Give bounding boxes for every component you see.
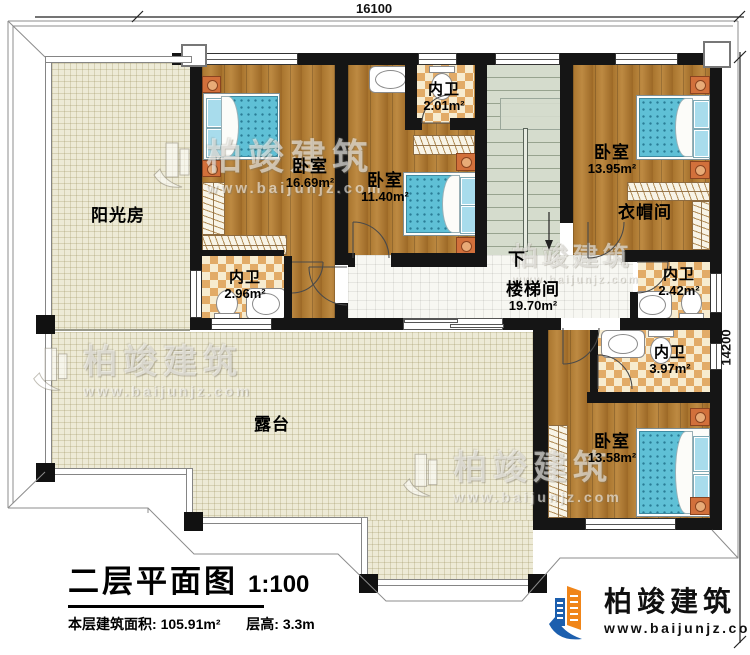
toilet-tank bbox=[429, 66, 455, 73]
room-area: 13.95m² bbox=[588, 162, 636, 177]
room-name: 衣帽间 bbox=[618, 203, 672, 222]
wall bbox=[405, 65, 417, 123]
room-label-bedroom3: 卧室 13.95m² bbox=[588, 143, 636, 177]
blanket bbox=[442, 175, 460, 233]
title-underline bbox=[68, 605, 264, 608]
terrace-post bbox=[359, 574, 378, 593]
brand-logo: 柏竣建筑 www.baijunjz.com bbox=[546, 582, 750, 642]
room-label-bath1: 内卫 2.96m² bbox=[224, 270, 265, 301]
pillow bbox=[694, 101, 709, 128]
room-name: 楼梯间 bbox=[506, 280, 560, 299]
nightstand bbox=[202, 160, 221, 177]
nightstand bbox=[690, 161, 710, 179]
terrace-post bbox=[184, 512, 203, 531]
room-area: 3.97m² bbox=[649, 362, 690, 377]
terrace-floor bbox=[366, 520, 533, 585]
dimension-width: 16100 bbox=[356, 1, 392, 16]
glass-wall bbox=[193, 517, 368, 524]
blanket bbox=[675, 98, 693, 157]
sliding-door-panel bbox=[404, 319, 458, 323]
glass-wall bbox=[368, 579, 536, 586]
brand-url: www.baijunjz.com bbox=[604, 620, 750, 636]
nightstand bbox=[456, 153, 476, 171]
room-area: 11.40m² bbox=[361, 190, 409, 205]
room-name: 阳光房 bbox=[91, 206, 145, 225]
room-label-bath2: 内卫 2.01m² bbox=[423, 82, 464, 113]
floor-area-value: 105.91m² bbox=[161, 616, 221, 632]
sink bbox=[375, 70, 406, 89]
corner-window-frame bbox=[703, 41, 731, 68]
window bbox=[585, 518, 676, 530]
window bbox=[190, 270, 202, 318]
window bbox=[202, 53, 298, 65]
bed bbox=[403, 172, 477, 236]
nightstand bbox=[690, 497, 710, 515]
plan-scale: 1:100 bbox=[248, 571, 309, 598]
room-name: 内卫 bbox=[423, 82, 464, 99]
window bbox=[615, 53, 678, 65]
stair-rail bbox=[523, 128, 528, 252]
wall bbox=[335, 65, 348, 265]
plan-info: 本层建筑面积: 105.91m² 层高: 3.3m bbox=[68, 614, 315, 634]
direction-text: 下 bbox=[508, 250, 526, 269]
sunroom-terrace-divider bbox=[52, 329, 190, 331]
room-name: 内卫 bbox=[649, 345, 690, 362]
room-name: 露台 bbox=[254, 415, 290, 434]
wall bbox=[630, 292, 638, 318]
room-label-sunroom: 阳光房 bbox=[91, 206, 145, 225]
bedroom2-closet bbox=[413, 135, 475, 155]
room-name: 卧室 bbox=[286, 157, 334, 176]
nightstand bbox=[690, 408, 710, 426]
terrace-post bbox=[528, 574, 547, 593]
room-label-bedroom4: 卧室 13.58m² bbox=[588, 432, 636, 466]
title-block: 二层平面图1:100 本层建筑面积: 105.91m² 层高: 3.3m bbox=[68, 556, 315, 634]
wall bbox=[284, 256, 292, 318]
pillow bbox=[461, 178, 476, 205]
bedroom4-closet bbox=[548, 425, 568, 518]
terrace-post bbox=[36, 315, 55, 334]
floor-height-value: 3.3m bbox=[283, 616, 315, 632]
pillow bbox=[694, 437, 709, 471]
toilet-tank bbox=[648, 330, 674, 337]
cloakroom-closet bbox=[627, 182, 710, 201]
floor-height-label: 层高: bbox=[246, 616, 279, 632]
room-label-terrace: 露台 bbox=[254, 415, 290, 434]
wall bbox=[391, 253, 475, 267]
cloakroom-closet bbox=[692, 201, 710, 250]
wall bbox=[405, 118, 422, 130]
room-area: 19.70m² bbox=[506, 299, 560, 314]
room-name: 卧室 bbox=[588, 143, 636, 162]
wall bbox=[590, 330, 598, 392]
room-name: 内卫 bbox=[658, 267, 699, 284]
window bbox=[211, 318, 272, 330]
nightstand bbox=[690, 76, 710, 94]
bed bbox=[636, 95, 710, 160]
room-label-bath4: 内卫 3.97m² bbox=[649, 345, 690, 376]
room-label-stairwell: 楼梯间 19.70m² bbox=[506, 280, 560, 314]
room-label-bedroom1: 卧室 16.69m² bbox=[286, 157, 334, 191]
sunroom-floor bbox=[52, 63, 190, 330]
bedroom1-closet bbox=[202, 182, 225, 235]
terrace-post bbox=[36, 463, 55, 482]
wall bbox=[620, 318, 710, 330]
glass-wall bbox=[45, 56, 52, 480]
stair-landing-outline bbox=[500, 98, 562, 130]
dimension-height: 14200 bbox=[719, 329, 734, 365]
wall bbox=[622, 250, 710, 262]
glass-wall bbox=[45, 56, 192, 63]
wall bbox=[560, 53, 573, 223]
glass-wall bbox=[52, 468, 192, 475]
wall bbox=[335, 303, 348, 318]
brand-logo-icon bbox=[546, 582, 596, 642]
pillow bbox=[461, 206, 476, 233]
window bbox=[710, 273, 722, 313]
window bbox=[418, 53, 457, 65]
wall bbox=[348, 253, 355, 267]
bed bbox=[203, 93, 280, 160]
room-area: 2.42m² bbox=[658, 284, 699, 299]
plan-title: 二层平面图 bbox=[68, 564, 238, 599]
room-area: 2.01m² bbox=[423, 99, 464, 114]
room-name: 内卫 bbox=[224, 270, 265, 287]
wall bbox=[475, 65, 487, 267]
nightstand bbox=[202, 76, 221, 93]
terrace-floor bbox=[52, 332, 533, 473]
terrace-floor bbox=[190, 473, 533, 520]
room-area: 13.58m² bbox=[588, 451, 636, 466]
sink bbox=[608, 334, 638, 354]
wall bbox=[587, 392, 710, 403]
room-area: 16.69m² bbox=[286, 176, 334, 191]
room-label-bath3: 内卫 2.42m² bbox=[658, 267, 699, 298]
floor-area-label: 本层建筑面积: bbox=[68, 616, 157, 632]
room-label-cloakroom: 衣帽间 bbox=[618, 203, 672, 222]
room-name: 卧室 bbox=[361, 171, 409, 190]
window bbox=[495, 53, 560, 65]
pillow bbox=[694, 130, 709, 157]
room-name: 卧室 bbox=[588, 432, 636, 451]
brand-name: 柏竣建筑 bbox=[604, 588, 750, 616]
wall bbox=[202, 250, 284, 256]
room-label-bedroom2: 卧室 11.40m² bbox=[361, 171, 409, 205]
wall bbox=[450, 118, 475, 130]
sliding-door-panel bbox=[450, 324, 504, 328]
wall bbox=[533, 330, 548, 518]
wall bbox=[503, 318, 561, 330]
room-area: 2.96m² bbox=[224, 287, 265, 302]
floor-plan-canvas: 柏竣建筑 www.baijunjz.com 柏竣建筑 www.baijunjz.… bbox=[0, 0, 750, 655]
stairs-down-label: 下 bbox=[508, 250, 526, 269]
